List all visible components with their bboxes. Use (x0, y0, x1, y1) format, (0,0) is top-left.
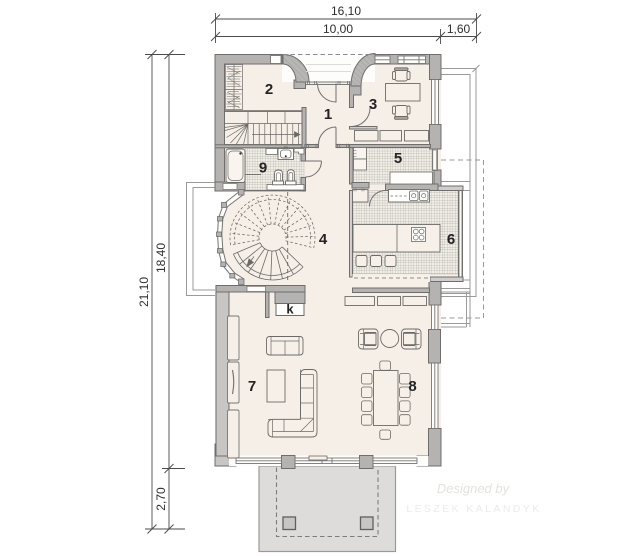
svg-text:LESZEK KALANDYK: LESZEK KALANDYK (406, 503, 541, 515)
svg-text:3: 3 (369, 96, 377, 113)
svg-text:2: 2 (265, 81, 273, 98)
svg-text:10,00: 10,00 (323, 22, 353, 36)
svg-text:Designed by: Designed by (437, 481, 511, 496)
svg-text:21,10: 21,10 (137, 277, 151, 307)
svg-text:9: 9 (259, 160, 267, 177)
svg-text:6: 6 (447, 231, 455, 248)
svg-text:8: 8 (408, 378, 416, 395)
svg-text:1,60: 1,60 (447, 22, 471, 36)
svg-text:2,70: 2,70 (154, 487, 168, 511)
svg-text:1: 1 (324, 106, 332, 123)
svg-text:16,10: 16,10 (331, 4, 361, 18)
svg-text:5: 5 (394, 150, 402, 167)
svg-text:7: 7 (248, 378, 256, 395)
svg-text:18,40: 18,40 (154, 243, 168, 273)
svg-text:k: k (286, 302, 294, 317)
svg-text:4: 4 (319, 231, 328, 248)
